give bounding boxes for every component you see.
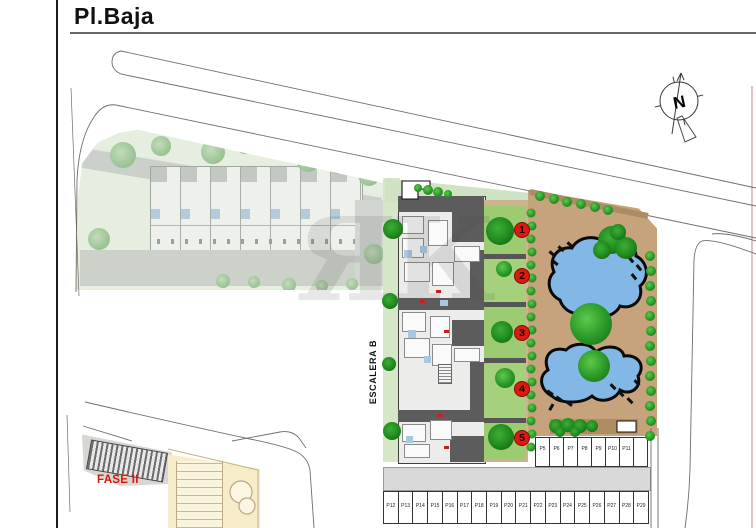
north-compass-icon: N xyxy=(649,71,710,142)
apartment-room xyxy=(454,348,480,362)
parking-space: P28 xyxy=(620,492,635,523)
terrace-divider xyxy=(484,418,526,423)
terrace-divider xyxy=(484,358,526,363)
tree-icon xyxy=(358,164,380,186)
pool-deck xyxy=(528,186,657,436)
stair-core xyxy=(438,364,452,384)
parking-space: P10 xyxy=(606,438,620,466)
parking-space-empty xyxy=(634,438,647,466)
tree-icon xyxy=(296,148,320,172)
plan-accent xyxy=(444,330,449,333)
page-title: Pl.Baja xyxy=(74,3,154,30)
parking-space: P25 xyxy=(575,492,590,523)
parking-space: P29 xyxy=(634,492,648,523)
escalera-b-label: ESCALERA B xyxy=(368,328,380,416)
fase-ii-label: FASE II xyxy=(97,474,161,486)
bush-icon xyxy=(282,278,296,292)
parking-space: P9 xyxy=(592,438,606,466)
parking-space: P14 xyxy=(413,492,428,523)
tree-icon xyxy=(201,140,225,164)
keyplan-phase1-building xyxy=(176,461,223,528)
apartment-room xyxy=(432,344,452,366)
watermark: ЯК xyxy=(296,206,466,316)
parking-row-upper: P5 P6 P7 P8 P9 P10 P11 xyxy=(535,437,648,467)
tree-icon xyxy=(110,142,136,168)
parking-space: P16 xyxy=(443,492,458,523)
parking-space: P22 xyxy=(531,492,546,523)
tree-icon xyxy=(88,228,110,250)
apartment-room xyxy=(404,338,430,358)
site-plan-page: Pl.Baja xyxy=(0,0,756,528)
plan-accent xyxy=(444,446,449,449)
parking-space: P13 xyxy=(399,492,414,523)
building-wall xyxy=(470,362,484,410)
muted-roof-row xyxy=(151,167,362,182)
building-wall xyxy=(450,436,484,462)
tree-icon xyxy=(328,154,348,174)
parking-space: P15 xyxy=(428,492,443,523)
parking-space: P6 xyxy=(550,438,564,466)
access-road xyxy=(383,467,651,491)
parking-space: P23 xyxy=(546,492,561,523)
hedge-planter xyxy=(550,419,638,434)
plan-accent xyxy=(438,414,443,417)
unit-marker-3: 3 xyxy=(514,325,530,341)
apartment-room xyxy=(430,420,452,440)
apartment-room xyxy=(404,444,430,458)
parking-space: P5 xyxy=(536,438,550,466)
parking-space: P27 xyxy=(605,492,620,523)
tree-icon xyxy=(151,136,171,156)
bath-fixture xyxy=(424,356,431,363)
parking-space: P17 xyxy=(458,492,473,523)
parking-space: P12 xyxy=(384,492,399,523)
bath-fixture xyxy=(408,330,416,338)
parking-space: P20 xyxy=(502,492,517,523)
tree-icon xyxy=(236,136,254,154)
unit-marker-4: 4 xyxy=(514,381,530,397)
parking-space: P19 xyxy=(487,492,502,523)
bath-fixture xyxy=(406,436,413,443)
parking-space: P11 xyxy=(620,438,634,466)
terrace-divider xyxy=(484,254,526,259)
parking-space: P8 xyxy=(578,438,592,466)
parking-row-lower: P12 P13 P14 P15 P16 P17 P18 P19 P20 P21 … xyxy=(383,491,649,524)
compass-n-label: N xyxy=(671,92,687,113)
unit-marker-1: 1 xyxy=(514,222,530,238)
parking-space: P21 xyxy=(516,492,531,523)
parking-space: P7 xyxy=(564,438,578,466)
parking-space: P26 xyxy=(590,492,605,523)
parking-space: P18 xyxy=(472,492,487,523)
terrace-divider xyxy=(484,302,526,307)
bush-icon xyxy=(248,276,260,288)
bush-icon xyxy=(216,274,230,288)
unit-marker-2: 2 xyxy=(514,268,530,284)
unit-marker-5: 5 xyxy=(514,430,530,446)
parking-space: P24 xyxy=(561,492,576,523)
